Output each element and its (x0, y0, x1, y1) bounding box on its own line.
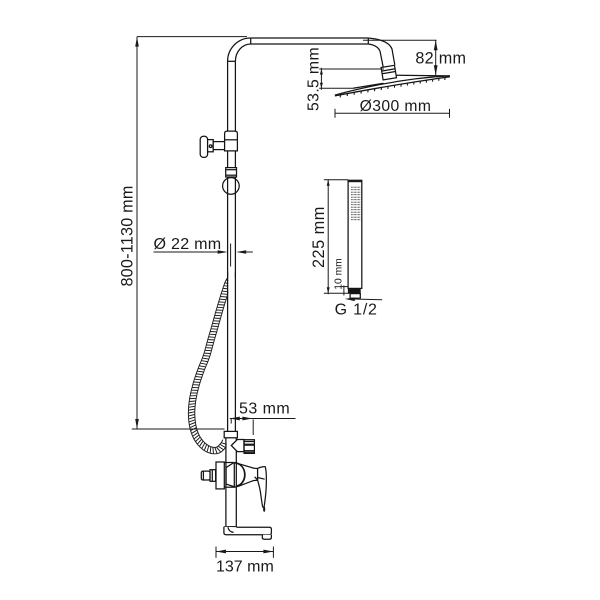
svg-text:10 mm: 10 mm (334, 258, 345, 289)
svg-text:82 mm: 82 mm (415, 50, 466, 68)
svg-text:Ø 22 mm: Ø 22 mm (154, 235, 222, 253)
svg-text:53.5 mm: 53.5 mm (306, 47, 323, 111)
svg-text:225 mm: 225 mm (310, 206, 328, 268)
svg-text:G 1/2: G 1/2 (335, 301, 378, 318)
svg-text:Ø300 mm: Ø300 mm (360, 98, 432, 115)
svg-text:800-1130 mm: 800-1130 mm (118, 185, 136, 286)
svg-text:53 mm: 53 mm (239, 401, 290, 418)
svg-text:137 mm: 137 mm (216, 559, 274, 576)
